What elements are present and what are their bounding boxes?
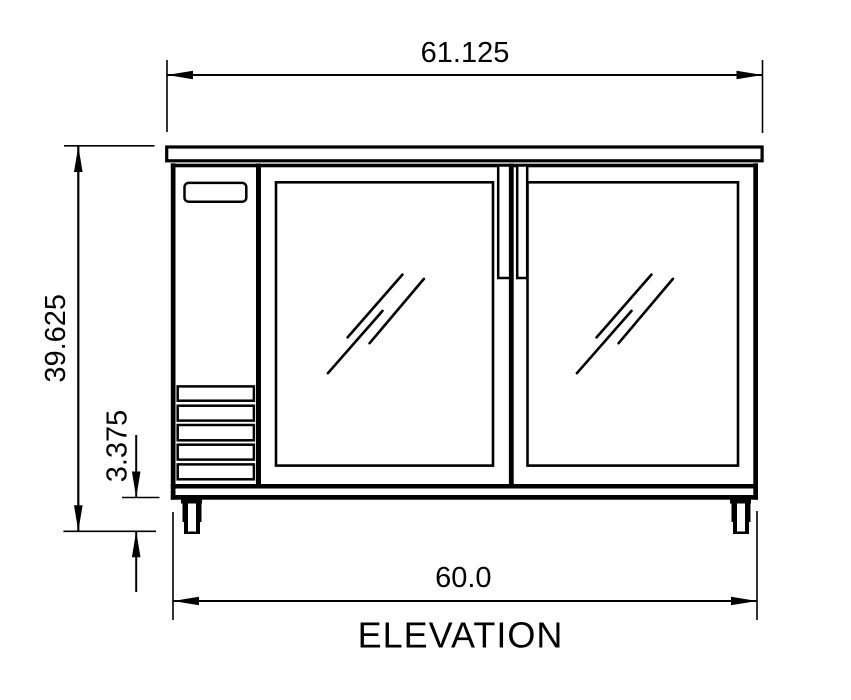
svg-text:3.375: 3.375 <box>101 410 133 483</box>
svg-text:61.125: 61.125 <box>421 37 510 69</box>
svg-text:60.0: 60.0 <box>435 562 491 594</box>
svg-text:ELEVATION: ELEVATION <box>358 615 564 656</box>
svg-text:39.625: 39.625 <box>40 294 72 383</box>
